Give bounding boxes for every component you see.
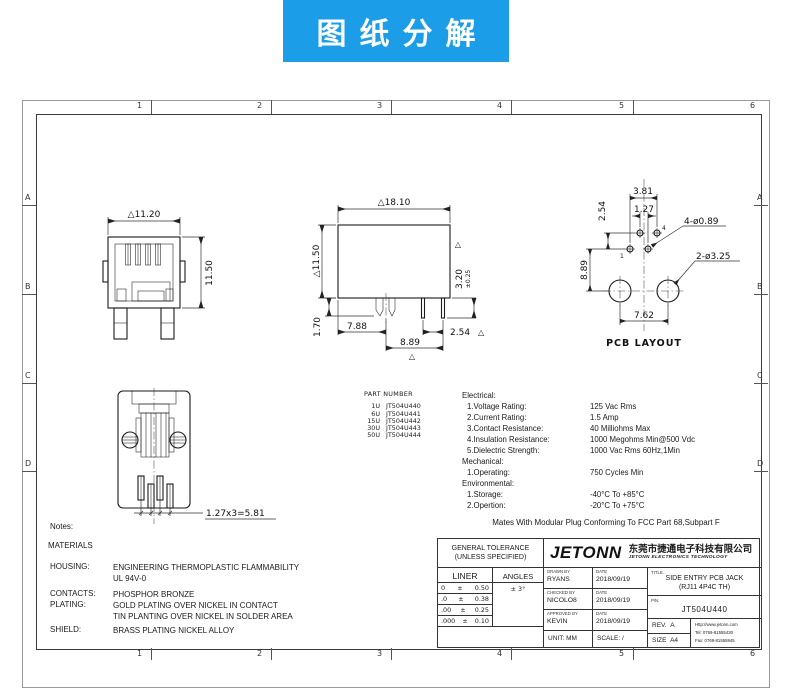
- dim-8-89: 8.89: [400, 338, 420, 348]
- spec-row: 1.Voltage Rating:125 Vac Rms: [462, 401, 757, 412]
- zone-tick: [754, 383, 768, 384]
- tolerance-header: GENERAL TOLERANCE (UNLESS SPECIFIED): [438, 539, 544, 568]
- zone-tick: [391, 648, 392, 660]
- page-banner: 图纸分解: [283, 0, 509, 62]
- part-number-header: PART NUMBER: [364, 391, 421, 398]
- pin-holes: [625, 228, 662, 254]
- drawing-title-line1: SIDE ENTRY PCB JACK: [648, 574, 761, 583]
- callout-large-holes: 2-ø3.25: [696, 252, 731, 262]
- approved-by-cell: APPROVED BY KEVIN: [544, 610, 593, 631]
- materials-title: MATERIALS: [48, 541, 93, 550]
- side-view-drawing: △18.10 △11.50 3.20 ±0.25 △ 1.70 7.88 2.5…: [312, 183, 530, 363]
- plating-label: PLATING:: [50, 600, 86, 609]
- zone-tick: [22, 383, 36, 384]
- dim-side-width: △18.10: [378, 198, 411, 208]
- telephone: Tel: 0769-81555430: [695, 629, 761, 637]
- housing-label: HOUSING:: [50, 562, 90, 571]
- zone-row-label: D: [25, 459, 31, 468]
- zone-col-label: 2: [257, 649, 262, 658]
- dim-1-27: 1.27: [634, 205, 654, 215]
- zone-col-label: 1: [137, 101, 142, 110]
- zone-tick: [151, 648, 152, 660]
- company-header: JETONN 东莞市捷通电子科技有限公司 JETONN ELECTRONICS …: [544, 539, 761, 568]
- zone-row-label: B: [25, 282, 31, 291]
- tolerance-empty-cell: [438, 627, 544, 647]
- callout-small-holes: 4-ø0.89: [684, 217, 719, 227]
- scale-cell: SCALE: /: [593, 631, 648, 647]
- tolerance-row: .00±0.25: [438, 605, 493, 616]
- website: Http://www.jetonn.com: [695, 621, 761, 629]
- spec-section-title: Electrical:: [462, 390, 757, 401]
- zone-tick: [22, 471, 36, 472]
- checked-date-cell: DATE 2018/09/19: [593, 589, 648, 610]
- drawing-title-cell: TITLE. SIDE ENTRY PCB JACK (RJ11 4P4C TH…: [648, 568, 761, 596]
- company-name-en: JETONN ELECTRONICS TECHNOLOGY: [629, 556, 753, 561]
- table-row: 50UJT504U444: [364, 432, 421, 439]
- solder-pins: [138, 476, 173, 508]
- zone-col-label: 5: [619, 101, 624, 110]
- spec-row: 1.Operating:750 Cycles Min: [462, 467, 757, 478]
- zone-tick: [22, 294, 36, 295]
- approved-date-cell: DATE 2018/09/19: [593, 610, 648, 631]
- zone-row-label: C: [25, 371, 31, 380]
- title-block: GENERAL TOLERANCE (UNLESS SPECIFIED) LIN…: [437, 538, 760, 648]
- fcc-compliance-note: Mates With Modular Plug Conforming To FC…: [455, 518, 757, 527]
- zone-row-label: A: [25, 193, 30, 202]
- spec-row: 2.Current Rating:1.5 Amp: [462, 412, 757, 423]
- dim-front-width: △11.20: [128, 210, 161, 220]
- drawing-title-line2: (RJ11 4P4C TH): [648, 583, 761, 592]
- zone-col-label: 1: [137, 649, 142, 658]
- zone-tick: [633, 648, 634, 660]
- part-number-table: PART NUMBER 1UJT504U440 6UJT504U441 15UJ…: [364, 391, 421, 440]
- housing-value: ENGINEERING THERMOPLASTIC FLAMMABILITY U…: [113, 562, 299, 584]
- dim-pin-pitch: 1.27x3=5.81: [206, 509, 265, 519]
- dim-pin-tolerance: ±0.25: [465, 270, 472, 289]
- dim-7-62: 7.62: [634, 311, 654, 321]
- spec-row: 2.Opertion:-20°C To +75°C: [462, 500, 757, 511]
- company-contact-cell: Http://www.jetonn.com Tel: 0769-81555430…: [691, 619, 761, 647]
- revision-triangle-icon: △: [409, 352, 416, 361]
- spec-row: 3.Contact Resistance:40 Milliohms Max: [462, 423, 757, 434]
- zone-tick: [511, 100, 512, 114]
- pcb-layout-label: PCB LAYOUT: [606, 338, 682, 349]
- contacts-value: PHOSPHOR BRONZE: [113, 589, 194, 600]
- shield-label: SHIELD:: [50, 625, 81, 634]
- liner-column-header: LINER: [438, 568, 493, 583]
- size-cell: SIZE A4: [648, 634, 691, 647]
- zone-row-label: D: [757, 459, 763, 468]
- dim-2-54: 2.54: [450, 328, 470, 338]
- tolerance-row: .000±0.10: [438, 616, 493, 627]
- dim-pin-length: 3.20: [455, 269, 465, 289]
- part-number-cell: P/N. JT504U440: [648, 596, 761, 619]
- zone-tick: [391, 100, 392, 114]
- zone-tick: [271, 100, 272, 114]
- revision-triangle-icon: △: [455, 240, 462, 249]
- checked-by-cell: CHECKED BY NICOLO8: [544, 589, 593, 610]
- contacts-label: CONTACTS:: [50, 589, 96, 598]
- company-name-cn: 东莞市捷通电子科技有限公司: [629, 545, 753, 555]
- zone-col-label: 2: [257, 101, 262, 110]
- drawn-by-cell: DRAWN BY RYANS: [544, 568, 593, 589]
- notes-title: Notes:: [50, 522, 73, 531]
- zone-col-label: 4: [497, 101, 502, 110]
- revision-triangle-icon: △: [478, 328, 485, 337]
- zone-col-label: 4: [497, 649, 502, 658]
- tolerance-row: 0±0.50: [438, 583, 493, 594]
- unit-cell: UNIT: MM: [544, 631, 593, 647]
- spec-section-title: Mechanical:: [462, 456, 757, 467]
- plating-value: GOLD PLATING OVER NICKEL IN CONTACT TIN …: [113, 600, 293, 622]
- front-view-drawing: △11.20 11.50: [55, 183, 285, 355]
- bottom-view-drawing: 1.27x3=5.81: [108, 388, 283, 530]
- spec-section-title: Environmental:: [462, 478, 757, 489]
- zone-row-label: C: [757, 371, 763, 380]
- zone-col-label: 5: [619, 649, 624, 658]
- zone-tick: [271, 648, 272, 660]
- spec-row: 1.Storage:-40°C To +85°C: [462, 489, 757, 500]
- zone-tick: [511, 648, 512, 660]
- dim-8-89-col: 8.89: [580, 260, 590, 280]
- tolerance-row: .0±0.38: [438, 594, 493, 605]
- zone-col-label: 3: [377, 101, 382, 110]
- dim-side-height: △11.50: [312, 244, 322, 277]
- zone-tick: [22, 205, 36, 206]
- angles-column-header: ANGLES: [493, 568, 544, 583]
- dim-latch-depth: 1.70: [313, 317, 323, 337]
- banner-title: 图纸分解: [317, 9, 489, 53]
- fax: Fax: 0769-81555945: [695, 637, 761, 645]
- zone-tick: [151, 100, 152, 114]
- pcb-layout-drawing: 3.81 1.27 4 1 2.54 8.89 4-ø0.89 2-ø3.25 …: [558, 173, 765, 358]
- pin-number-4: 4: [662, 225, 666, 232]
- part-number-value: JT504U440: [648, 605, 761, 614]
- spec-row: 4.Insulation Resistance:1000 Megohms Min…: [462, 434, 757, 445]
- specifications: Electrical: 1.Voltage Rating:125 Vac Rms…: [462, 390, 757, 511]
- shield-value: BRASS PLATING NICKEL ALLOY: [113, 625, 234, 636]
- dim-7-88: 7.88: [347, 322, 367, 332]
- dim-3-81: 3.81: [633, 187, 653, 197]
- dim-2-54-rows: 2.54: [598, 201, 608, 221]
- zone-col-label: 6: [750, 649, 755, 658]
- zone-col-label: 6: [750, 101, 755, 110]
- zone-col-label: 3: [377, 649, 382, 658]
- spec-row: 5.Dielectric Strength:1000 Vac Rms 60Hz,…: [462, 445, 757, 456]
- zone-tick: [633, 100, 634, 114]
- drawn-date-cell: DATE 2018/09/19: [593, 568, 648, 589]
- revision-cell: REV. A: [648, 619, 691, 634]
- pin-number-1: 1: [620, 253, 624, 260]
- dim-front-height: 11.50: [205, 260, 215, 286]
- jetonn-logo: JETONN: [550, 543, 622, 563]
- contact-pins: [126, 244, 161, 265]
- angle-tolerance: ± 3°: [493, 583, 544, 627]
